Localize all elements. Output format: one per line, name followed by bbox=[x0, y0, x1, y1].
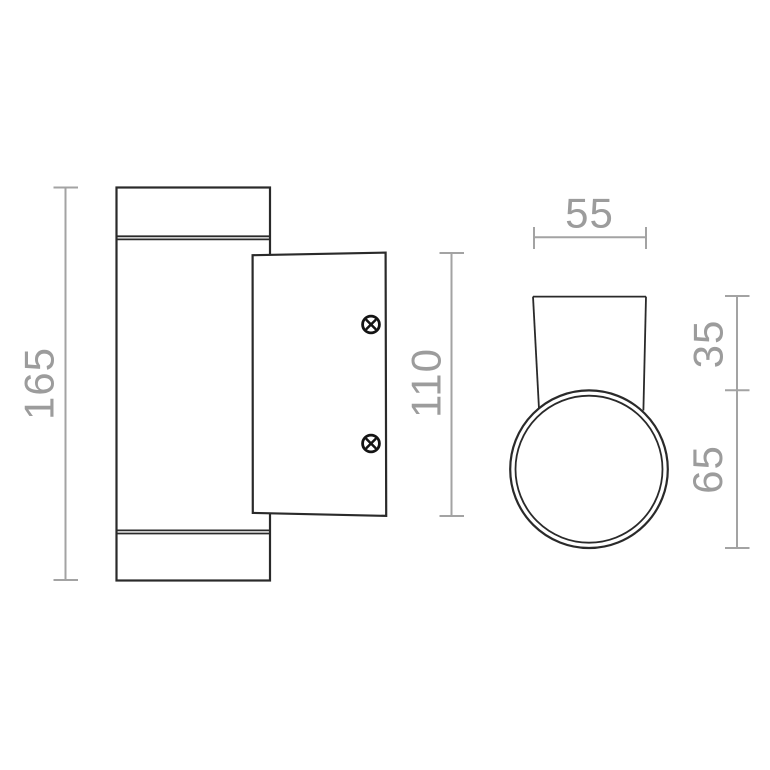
plate-height-dimension: 110 bbox=[403, 253, 464, 516]
overall-height-dimension: 165 bbox=[16, 188, 78, 581]
plate-height-dim-label: 110 bbox=[403, 348, 450, 418]
phillips-screw-icon bbox=[363, 435, 380, 452]
bracket-depth-dim-label: 35 bbox=[685, 320, 732, 369]
side-view: 165 110 bbox=[16, 188, 464, 581]
bracket-left-edge bbox=[533, 297, 539, 409]
body-circle-outer bbox=[510, 390, 668, 548]
bracket-right-edge bbox=[643, 297, 646, 411]
phillips-screw-icon bbox=[363, 316, 380, 333]
top-width-dim-label: 55 bbox=[565, 190, 614, 237]
top-width-dimension: 55 bbox=[534, 190, 646, 249]
lamp-body-outline bbox=[117, 188, 271, 581]
body-diameter-dim-label: 65 bbox=[684, 445, 731, 494]
depth-diameter-dimension: 35 65 bbox=[684, 296, 749, 548]
diagram-canvas: 165 110 55 bbox=[0, 0, 770, 770]
technical-drawing: 165 110 55 bbox=[0, 0, 770, 770]
overall-height-dim-label: 165 bbox=[16, 347, 63, 420]
mounting-plate-outline bbox=[253, 253, 387, 516]
top-view: 55 35 65 bbox=[510, 190, 749, 548]
